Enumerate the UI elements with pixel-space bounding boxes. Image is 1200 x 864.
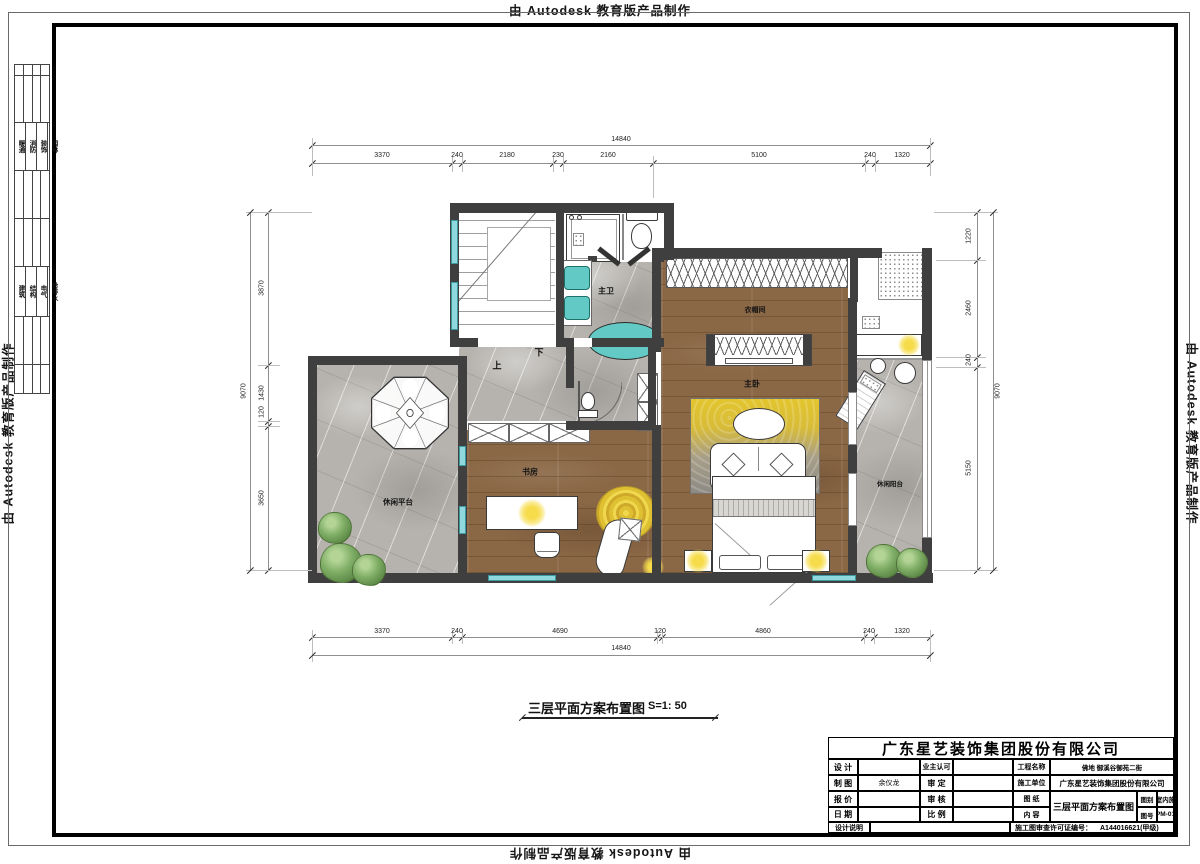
wall-powder-left bbox=[566, 338, 574, 388]
basin bbox=[564, 266, 590, 290]
wall-powder-bottom bbox=[566, 421, 656, 430]
project-label: 工程名称 bbox=[1013, 759, 1050, 775]
check-value bbox=[953, 791, 1013, 807]
dim-ext bbox=[312, 630, 313, 662]
island-shelf bbox=[725, 358, 793, 364]
dim-label: 1320 bbox=[894, 152, 910, 159]
dressing-stool bbox=[870, 358, 886, 374]
desk-lamp-glow bbox=[518, 499, 546, 527]
dim-label: 9070 bbox=[241, 383, 248, 399]
bed-blanket-band bbox=[713, 499, 815, 517]
category-label: 图别 bbox=[1137, 791, 1157, 807]
discipline-landscape: 园林 bbox=[48, 140, 58, 153]
dim-line-left-chain bbox=[268, 212, 269, 570]
wall-balcony-divider-top bbox=[848, 298, 857, 392]
discipline-structure: 结构 bbox=[26, 285, 36, 298]
chaise-pillow bbox=[618, 518, 642, 542]
note-value bbox=[870, 822, 1010, 833]
dim-label: 240 bbox=[863, 628, 875, 635]
dresser-lamp-glow bbox=[898, 334, 920, 356]
dim-label: 240 bbox=[451, 152, 463, 159]
license-label: 施工图审查许可证编号： bbox=[1015, 823, 1092, 833]
stair-down-mark: 下 bbox=[534, 346, 543, 359]
company-name: 广东星艺装饰集团股份有限公司 bbox=[828, 737, 1174, 759]
wall-bedroom-left-lower bbox=[652, 425, 661, 573]
dim-label: 4690 bbox=[552, 628, 568, 635]
dim-label: 1220 bbox=[966, 228, 973, 244]
settee-cushion2 bbox=[769, 452, 793, 476]
room-label-terrace: 休闲平台 bbox=[383, 497, 413, 508]
wall-stair-bottom-stub bbox=[450, 338, 478, 347]
wall-bedroom-top bbox=[656, 248, 882, 258]
lamp-glow bbox=[686, 549, 710, 573]
owner-approve-value bbox=[953, 759, 1013, 775]
number-value: PM-01 bbox=[1157, 807, 1174, 822]
divider-window2 bbox=[848, 473, 857, 526]
bush3 bbox=[352, 554, 386, 586]
dim-label: 3370 bbox=[374, 628, 390, 635]
number-label: 图号 bbox=[1137, 807, 1157, 822]
dim-label: 3650 bbox=[259, 490, 266, 506]
wall-balcony-divider-bottom bbox=[848, 526, 857, 573]
dim-label: 3370 bbox=[374, 152, 390, 159]
dim-ext bbox=[312, 138, 313, 176]
room-label-master-bath: 主卫 bbox=[598, 286, 614, 297]
project-value: 佛地 御溪谷御苑二街 bbox=[1050, 759, 1174, 775]
approve-label: 审 定 bbox=[920, 775, 953, 791]
lamp-glow2 bbox=[804, 549, 828, 573]
window-mullion bbox=[927, 361, 928, 537]
quote-label: 报 价 bbox=[828, 791, 858, 807]
design-label: 设 计 bbox=[828, 759, 858, 775]
dim-label: 2160 bbox=[600, 152, 616, 159]
balcony-threshold bbox=[857, 358, 922, 360]
dim-label: 9070 bbox=[995, 383, 1002, 399]
discipline-row-bottom: 建筑 结构 电气 给排水 bbox=[15, 267, 49, 317]
dim-ext bbox=[258, 421, 280, 422]
room-label-study: 书房 bbox=[522, 467, 538, 478]
dim-ext bbox=[653, 156, 654, 198]
room-label-cloakroom: 衣帽间 bbox=[745, 305, 766, 315]
dresser-pad bbox=[862, 316, 880, 329]
contractor-value: 广东星艺装饰集团股份有限公司 bbox=[1050, 775, 1174, 791]
bush5 bbox=[896, 548, 928, 578]
dim-label: 5150 bbox=[966, 460, 973, 476]
sheet-label: 图 纸 bbox=[1013, 791, 1050, 807]
dim-label: 14840 bbox=[611, 136, 630, 143]
dim-label: 4860 bbox=[755, 628, 771, 635]
note-label: 设计说明 bbox=[828, 822, 870, 833]
wall-stair-bath-divider bbox=[556, 212, 564, 344]
wall-balcony-divider-mid bbox=[848, 445, 857, 473]
dim-line-bottom-chain bbox=[312, 637, 930, 638]
dim-label: 1430 bbox=[259, 385, 266, 401]
approve-value bbox=[953, 775, 1013, 791]
basin2 bbox=[564, 296, 590, 320]
stair-window2 bbox=[451, 282, 458, 330]
stairwell bbox=[459, 213, 555, 337]
dim-ext bbox=[246, 570, 312, 571]
quote-value bbox=[858, 791, 920, 807]
dim-ext bbox=[930, 630, 931, 662]
shower-valve-icon bbox=[569, 215, 574, 220]
wall-terrace-left bbox=[308, 356, 317, 583]
discipline-plumbing: 给排水 bbox=[48, 282, 58, 302]
ac-platform-hatch bbox=[878, 252, 924, 300]
title-block: 广东星艺装饰集团股份有限公司 设 计 业主认可 工程名称 佛地 御溪谷御苑二街 … bbox=[828, 737, 1174, 833]
wall-bedroom-left-upper bbox=[652, 248, 661, 352]
dim-label: 5100 bbox=[751, 152, 767, 159]
settee-divider bbox=[758, 447, 759, 471]
dim-ext bbox=[930, 138, 931, 176]
dim-label: 2460 bbox=[966, 300, 973, 316]
island-hanger-panel bbox=[715, 337, 803, 355]
license-cell: 施工图审查许可证编号： A144016621(甲级) bbox=[1010, 822, 1174, 833]
dim-label: 240 bbox=[451, 628, 463, 635]
dim-line-top-chain bbox=[312, 163, 930, 164]
dim-line-top-total bbox=[312, 145, 930, 146]
dim-label: 1320 bbox=[894, 628, 910, 635]
dim-ext bbox=[936, 260, 986, 261]
wall-closet-end bbox=[850, 252, 858, 302]
license-value: A144016621(甲级) bbox=[1100, 823, 1159, 833]
owner-approve-label: 业主认可 bbox=[920, 759, 953, 775]
discipline-arch: 建筑 bbox=[15, 285, 25, 298]
cabinet-cell2 bbox=[509, 423, 550, 443]
study-window-bottom bbox=[488, 575, 556, 581]
island-end bbox=[707, 335, 715, 365]
bedroom-window-bottom bbox=[812, 575, 856, 581]
dim-label: 14840 bbox=[611, 645, 630, 652]
dim-ext bbox=[258, 365, 280, 366]
tv-cabinet-island bbox=[706, 334, 812, 366]
balcony-side-table bbox=[894, 362, 916, 384]
plan-scale: S=1: 50 bbox=[648, 700, 687, 712]
study-window-left bbox=[459, 446, 466, 466]
dim-line-bottom-total bbox=[312, 655, 930, 656]
check-label: 审 核 bbox=[920, 791, 953, 807]
powder-toilet-bowl bbox=[581, 392, 595, 410]
plan-title: 三层平面方案布置图 bbox=[528, 698, 645, 717]
wall-right-upper bbox=[922, 248, 932, 360]
category-value: 室内施 bbox=[1157, 791, 1174, 807]
wall-terrace-top bbox=[308, 356, 463, 365]
dim-label: 240 bbox=[864, 152, 876, 159]
room-label-master-bedroom: 主卧 bbox=[744, 379, 760, 390]
bush bbox=[318, 512, 352, 544]
dim-ext bbox=[936, 367, 986, 368]
stair-up-mark: 上 bbox=[492, 359, 501, 372]
umbrella-table-icon bbox=[362, 370, 458, 456]
cabinet-cell bbox=[468, 423, 509, 443]
dim-label: 3870 bbox=[259, 280, 266, 296]
oval-coffee-table bbox=[733, 408, 785, 440]
bed-pillow bbox=[719, 555, 761, 570]
dim-label: 120 bbox=[259, 406, 266, 418]
shower-valve-icon2 bbox=[577, 215, 582, 220]
drawing-sheet: 由 Autodesk 教育版产品制作 由 Autodesk 教育版产品制作 由 … bbox=[0, 0, 1200, 859]
sheet-content-value: 三层平面方案布置图 bbox=[1050, 791, 1137, 822]
dim-ext bbox=[258, 426, 280, 427]
dim-label: 230 bbox=[552, 152, 564, 159]
wall-study-left bbox=[458, 356, 467, 583]
discipline-table: 暖通 消防 装饰 园林 建筑 结构 电气 给排水 bbox=[14, 64, 50, 394]
discipline-hvac: 暖通 bbox=[15, 140, 25, 153]
discipline-row-top: 暖通 消防 装饰 园林 bbox=[15, 123, 49, 171]
design-value bbox=[858, 759, 920, 775]
wardrobe-strip bbox=[666, 258, 848, 288]
dim-label: 2180 bbox=[499, 152, 515, 159]
room-label-balcony: 休闲阳台 bbox=[877, 478, 903, 488]
island-end2 bbox=[803, 335, 811, 365]
right-window-band bbox=[922, 360, 932, 538]
bath-partition-line bbox=[622, 214, 624, 260]
discipline-fire: 消防 bbox=[26, 140, 36, 153]
date-value bbox=[858, 807, 920, 822]
stamp-bottom: 由 Autodesk 教育版产品制作 bbox=[0, 845, 1200, 864]
date-label: 日 期 bbox=[828, 807, 858, 822]
chair-back-line bbox=[537, 551, 557, 552]
bed bbox=[712, 476, 816, 573]
dim-ext bbox=[934, 212, 998, 213]
settee-cushion bbox=[721, 452, 745, 476]
dim-line-right-chain bbox=[977, 212, 978, 570]
toilet-bowl bbox=[631, 223, 652, 249]
discipline-electrical: 电气 bbox=[37, 285, 47, 298]
draft-value: 余仪龙 bbox=[858, 775, 920, 791]
discipline-decor: 装饰 bbox=[37, 140, 47, 153]
ratio-value bbox=[953, 807, 1013, 822]
dim-label: 240 bbox=[966, 354, 973, 366]
desk-chair bbox=[534, 532, 560, 558]
dim-ext bbox=[936, 357, 986, 358]
powder-toilet-tank bbox=[578, 410, 598, 418]
contractor-label: 施工单位 bbox=[1013, 775, 1050, 791]
stair-window bbox=[451, 220, 458, 264]
title-underline bbox=[522, 717, 718, 719]
content-label: 内 容 bbox=[1013, 807, 1050, 822]
dim-ext bbox=[246, 212, 312, 213]
study-window-left2 bbox=[459, 506, 466, 534]
stair-landing bbox=[487, 227, 551, 301]
draft-label: 制 图 bbox=[828, 775, 858, 791]
dim-ext bbox=[934, 570, 998, 571]
dim-label: 120 bbox=[654, 628, 666, 635]
dim-line-left-total bbox=[250, 212, 251, 570]
showerhead-icon bbox=[573, 233, 584, 246]
divider-window bbox=[848, 392, 857, 445]
ratio-label: 比 例 bbox=[920, 807, 953, 822]
